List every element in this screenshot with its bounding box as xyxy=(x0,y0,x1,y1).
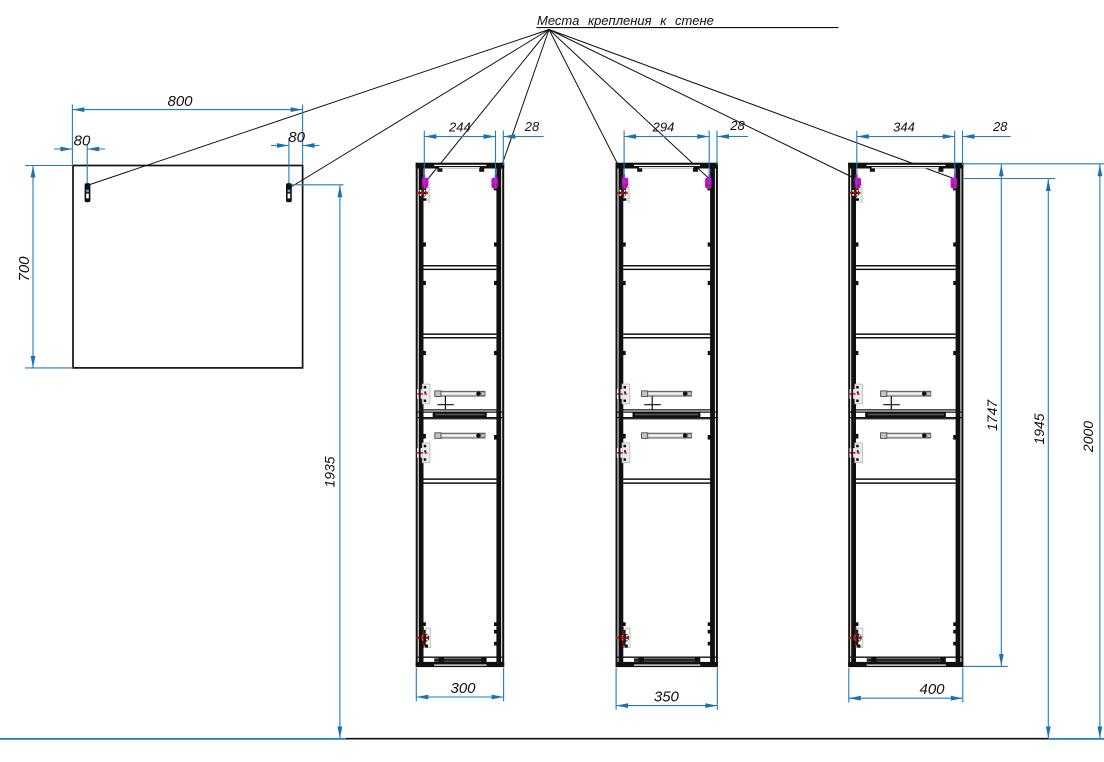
svg-text:2000: 2000 xyxy=(1080,421,1096,453)
svg-text:700: 700 xyxy=(16,256,33,282)
svg-text:28: 28 xyxy=(992,119,1008,134)
svg-text:28: 28 xyxy=(524,119,540,134)
svg-text:294: 294 xyxy=(652,119,675,134)
svg-text:244: 244 xyxy=(448,119,471,134)
svg-text:800: 800 xyxy=(167,93,193,110)
svg-text:1945: 1945 xyxy=(1031,413,1047,444)
svg-text:400: 400 xyxy=(919,681,945,698)
svg-text:344: 344 xyxy=(893,119,915,134)
svg-text:80: 80 xyxy=(288,129,305,146)
svg-text:300: 300 xyxy=(450,680,476,697)
svg-text:28: 28 xyxy=(729,118,745,133)
svg-text:1747: 1747 xyxy=(984,399,1000,431)
svg-text:Места крепления к стене: Места крепления к стене xyxy=(537,13,714,28)
svg-text:80: 80 xyxy=(74,132,91,149)
svg-text:1935: 1935 xyxy=(322,456,338,487)
svg-text:350: 350 xyxy=(654,689,680,706)
